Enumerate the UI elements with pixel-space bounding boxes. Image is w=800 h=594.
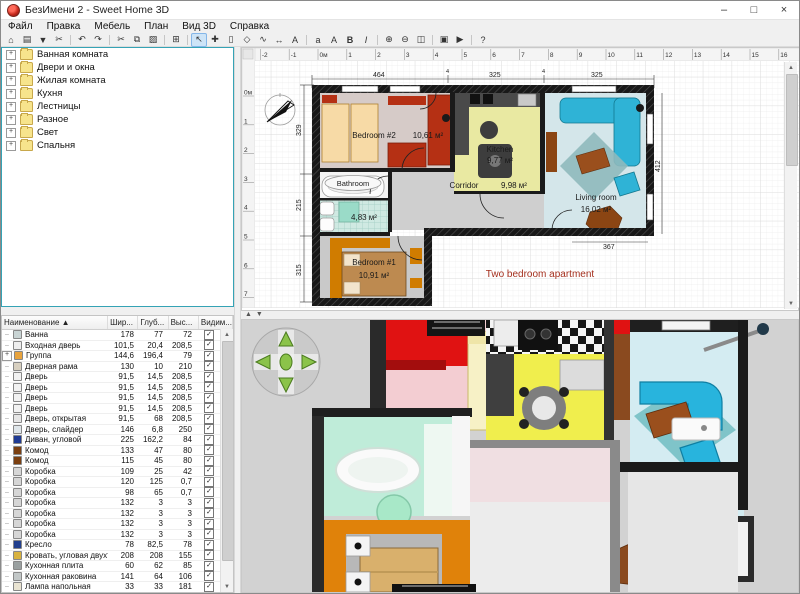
furniture-name: Коробка [25,477,56,486]
furniture-row[interactable]: –Дверная рама13010210✓ [2,362,233,373]
column-header-3[interactable]: Выс... [169,316,199,329]
furniture-name-cell: –Дверь, открытая [2,414,108,423]
column-header-1[interactable]: Шир... [108,316,138,329]
label-bedroom2: Bedroom #2 [352,131,396,140]
label-corridor-area: 9,98 м² [501,181,527,190]
furniture-row[interactable]: –Кресло7882,578✓ [2,540,233,551]
close-button[interactable]: × [769,1,799,19]
depth-cell: 77 [137,330,166,339]
furniture-name: Коробка [25,488,56,497]
copy-icon[interactable]: ⧉ [129,33,145,47]
depth-cell: 14,5 [137,383,166,392]
ruler-label: 5 [464,52,468,59]
visible-cell: ✓ [195,519,223,529]
height-cell: 181 [166,582,195,591]
depth-cell: 196,4 [137,351,166,360]
visible-cell: ✓ [195,382,223,392]
folder-icon [20,101,33,112]
select-tool-icon[interactable]: ↖ [191,33,207,47]
column-header-4[interactable]: Видим... [199,316,233,329]
ruler-label: 3 [244,176,248,183]
preferences-icon[interactable]: ✂ [51,33,67,47]
visible-cell: ✓ [195,550,223,560]
ruler-label: -2 [262,52,268,59]
view-3d-canvas[interactable] [242,320,799,592]
visible-checkbox[interactable]: ✓ [204,540,214,550]
width-cell: 133 [108,446,137,455]
height-cell: 208,5 [166,341,195,350]
furniture-name: Кухонная раковина [25,572,96,581]
label-corridor: Corridor [450,181,479,190]
ruler-label: 2 [244,147,248,154]
height-cell: 208,5 [166,414,195,423]
ruler-corner-icon [243,49,253,59]
width-cell: 178 [108,330,137,339]
add-furniture-icon[interactable]: ⊞ [168,33,184,47]
tree-line: – [5,583,11,590]
tree-line: – [5,426,11,433]
view-3d-panel[interactable] [241,319,799,593]
tree-line: – [5,468,11,475]
furniture-name: Дверь [25,372,48,381]
furniture-row[interactable]: –Комод1334780✓ [2,446,233,457]
visible-checkbox[interactable]: ✓ [204,477,214,487]
tree-line: – [5,457,11,464]
furniture-row[interactable]: –Коробка1092542✓ [2,467,233,478]
italic-icon[interactable]: I [358,33,374,47]
ruler-label: 10 [608,52,616,59]
ruler-label: 7 [521,52,525,59]
column-header-2[interactable]: Глуб... [138,316,168,329]
create-dimensions-icon[interactable]: ↔ [271,33,287,47]
visible-checkbox[interactable]: ✓ [204,508,214,518]
furniture-name-cell: –Коробка [2,488,108,497]
furniture-list-header[interactable]: Наименование ▲Шир...Глуб...Выс...Видим..… [2,316,233,330]
width-cell: 208 [108,551,137,560]
visible-checkbox[interactable]: ✓ [204,435,214,445]
toolbar-group: ✂⧉▨ [113,33,161,47]
folder-icon [20,140,33,151]
label-bedroom1-area: 10,91 м² [359,271,390,280]
toolbar-group: ↖✚▯◇∿↔A [191,33,303,47]
furniture-row[interactable]: –Кровать, угловая двухъяр...208208155✓ [2,551,233,562]
open-home-icon[interactable]: ▤ [19,33,35,47]
toolbar-group: ↶↷ [74,33,106,47]
decrease-text-icon[interactable]: a [310,33,326,47]
width-cell: 120 [108,477,137,486]
furniture-name-cell: –Дверь, слайдер [2,425,108,434]
create-photo-icon[interactable]: ▣ [436,33,452,47]
dim-label-315: 315 [296,264,303,276]
width-cell: 60 [108,561,137,570]
menu-edit[interactable]: Правка [40,20,88,33]
bold-icon[interactable]: B [342,33,358,47]
height-cell: 42 [166,467,195,476]
furniture-row[interactable]: –Входная дверь101,520,4208,5✓ [2,341,233,352]
ruler-label: 0м [320,52,329,59]
folder-icon [20,49,33,60]
zoom-in-icon[interactable]: ⊕ [381,33,397,47]
visible-checkbox[interactable]: ✓ [204,393,214,403]
width-cell: 146 [108,425,137,434]
maximize-button[interactable]: □ [739,1,769,19]
visible-checkbox[interactable]: ✓ [204,529,214,539]
visible-cell: ✓ [195,330,223,340]
left-right-splitter[interactable] [234,47,241,593]
tree-line: – [5,342,11,349]
toolbar-group: aABI [310,33,374,47]
plan-scroll-up-arrow[interactable]: ▲ [785,62,797,73]
ruler-label: 7 [244,291,248,298]
scrollbar-thumb[interactable] [222,341,234,561]
toolbar-separator [70,35,71,45]
tree-line: – [5,363,11,370]
furniture-row[interactable]: –Дверь91,514,5208,5✓ [2,404,233,415]
visible-checkbox[interactable]: ✓ [204,519,214,529]
tree-line: – [5,478,11,485]
visible-checkbox[interactable]: ✓ [204,424,214,434]
furniture-row[interactable]: –Дверь, слайдер1466,8250✓ [2,425,233,436]
furniture-row[interactable]: –Комод1154580✓ [2,456,233,467]
plan-scrollbar[interactable]: ▲ ▼ [784,62,797,309]
paste-icon[interactable]: ▨ [145,33,161,47]
label-bath-small-area: 4,83 м² [351,213,377,222]
furniture-row[interactable]: –Коробка1201250,7✓ [2,477,233,488]
catalog-category[interactable]: +Лестницы [2,100,233,113]
window-title: БезИмени 2 - Sweet Home 3D [25,4,169,16]
folder-icon [20,75,33,86]
catalog-category-label: Лестницы [37,101,80,112]
visible-cell: ✓ [195,351,223,361]
visible-cell: ✓ [195,435,223,445]
folder-icon [20,88,33,99]
catalog-category-label: Двери и окна [37,62,95,73]
height-cell: 80 [166,446,195,455]
tree-line: – [5,489,11,496]
compass-center-knob[interactable] [280,354,292,370]
furniture-name: Лампа напольная [25,582,91,591]
ruler-label: 4 [435,52,439,59]
furniture-name: Коробка [25,519,56,528]
column-header-0[interactable]: Наименование ▲ [2,316,108,329]
increase-text-icon[interactable]: A [326,33,342,47]
furniture-row[interactable]: –Коробка13233✓ [2,509,233,520]
expand-icon[interactable]: + [6,76,16,86]
furniture-row[interactable]: –Дверь91,514,5208,5✓ [2,372,233,383]
catalog-category[interactable]: +Кухня [2,87,233,100]
catalog-category-label: Жилая комната [37,75,106,86]
visible-cell: ✓ [195,445,223,455]
visible-checkbox[interactable]: ✓ [204,498,214,508]
expand-icon[interactable]: + [6,89,16,99]
furniture-name: Ванна [25,330,48,339]
visible-checkbox[interactable]: ✓ [204,571,214,581]
save-home-icon[interactable]: ▼ [35,33,51,47]
height-cell: 208,5 [166,404,195,413]
undo-icon[interactable]: ↶ [74,33,90,47]
add-text-icon[interactable]: A [287,33,303,47]
furniture-list-scrollbar[interactable]: ▲ ▼ [220,329,233,592]
depth-cell: 62 [137,561,166,570]
render-3d-apartment [312,320,769,592]
menu-plan[interactable]: План [137,20,175,33]
create-video-icon[interactable]: ▶ [452,33,468,47]
furniture-name-cell: –Дверная рама [2,362,108,371]
width-cell: 115 [108,456,137,465]
help-icon[interactable]: ? [475,33,491,47]
depth-cell: 125 [137,477,166,486]
toolbar-group: ⊞ [168,33,184,47]
height-cell: 3 [166,498,195,507]
dresser-icon [13,456,22,465]
furniture-catalog-tree[interactable]: +Ванная комната+Двери и окна+Жилая комна… [1,47,234,307]
expand-icon[interactable]: + [6,102,16,112]
ruler-label: 0м [244,90,253,97]
expand-icon[interactable]: + [2,351,12,361]
furniture-name: Коробка [25,509,56,518]
toolbar-group: ? [475,33,491,47]
tree-line: – [5,573,11,580]
ruler-label: 15 [752,52,760,59]
toolbar-separator [432,35,433,45]
furniture-row[interactable]: –Кухонная плита606285✓ [2,561,233,572]
label-living: Living room [575,193,617,202]
folder-icon [20,127,33,138]
menu-file[interactable]: Файл [1,20,40,33]
toolbar-group: ⌂▤▼✂ [3,33,67,47]
visible-cell: ✓ [195,477,223,487]
furniture-row[interactable]: –Кухонная раковина14164106✓ [2,572,233,583]
height-cell: 85 [166,561,195,570]
ruler-label: 3 [406,52,410,59]
zoom-out-icon[interactable]: ⊖ [397,33,413,47]
furniture-name: Диван, угловой [25,435,81,444]
furniture-name: Дверь, слайдер [25,425,83,434]
plan-view-panel[interactable]: -2-10м12345678910111213141516 0м1234567 [241,47,799,311]
visible-cell: ✓ [195,498,223,508]
visible-checkbox[interactable]: ✓ [204,582,214,592]
visible-cell: ✓ [195,456,223,466]
furniture-name: Дверь [25,404,48,413]
expand-icon[interactable]: + [6,50,16,60]
furniture-name: Дверь [25,393,48,402]
furniture-row[interactable]: –Дверь91,514,5208,5✓ [2,393,233,404]
menu-view3d[interactable]: Вид 3D [175,20,223,33]
furniture-name-cell: –Кухонная раковина [2,572,108,581]
plan-3d-splitter[interactable]: ▲ ▼ [241,311,799,319]
width-cell: 91,5 [108,404,137,413]
door-open-icon [13,414,22,423]
visible-checkbox[interactable]: ✓ [204,340,214,350]
furniture-name: Дверь, открытая [25,414,86,423]
create-walls-icon[interactable]: ▯ [223,33,239,47]
menu-furniture[interactable]: Мебель [87,20,137,33]
group-icon [14,351,23,360]
catalog-category[interactable]: +Двери и окна [2,61,233,74]
furniture-name-cell: –Дверь [2,393,108,402]
width-cell: 141 [108,572,137,581]
new-home-icon[interactable]: ⌂ [3,33,19,47]
furniture-name: Комод [25,446,49,455]
catalog-category[interactable]: +Спальня [2,139,233,152]
furniture-name: Коробка [25,467,56,476]
menu-bar: ФайлПравкаМебельПланВид 3DСправка [1,20,799,33]
expand-icon[interactable]: + [6,115,16,125]
catalog-furniture-splitter[interactable] [1,307,234,315]
ruler-label: 13 [694,52,702,59]
catalog-category[interactable]: +Разное [2,113,233,126]
ruler-label: 6 [492,52,496,59]
depth-cell: 14,5 [137,404,166,413]
create-rooms-icon[interactable]: ◇ [239,33,255,47]
expand-icon[interactable]: + [6,128,16,138]
create-polylines-icon[interactable]: ∿ [255,33,271,47]
plan-scrollbar-thumb[interactable] [786,74,798,166]
tree-line: – [5,531,11,538]
width-cell: 98 [108,488,137,497]
depth-cell: 33 [137,582,166,591]
width-cell: 109 [108,467,137,476]
depth-cell: 162,2 [137,435,166,444]
visible-cell: ✓ [195,561,223,571]
minimize-button[interactable]: – [709,1,739,19]
sofa-icon [13,435,22,444]
height-cell: 80 [166,456,195,465]
furniture-row[interactable]: –Дверь, открытая91,568208,5✓ [2,414,233,425]
furniture-row[interactable]: –Ванна1787772✓ [2,330,233,341]
expand-icon[interactable]: + [6,141,16,151]
depth-cell: 20,4 [137,341,166,350]
plan-subtitle[interactable]: Two bedroom apartment [486,269,595,280]
visible-checkbox[interactable]: ✓ [204,382,214,392]
box-icon [13,519,22,528]
furniture-name: Группа [26,351,51,360]
ruler-label: 2 [377,52,381,59]
toolbar-group: ▣▶ [436,33,468,47]
visible-checkbox[interactable]: ✓ [204,351,214,361]
tree-line: – [5,415,11,422]
tree-line: – [5,394,11,401]
door-frame-icon [13,362,22,371]
visible-checkbox[interactable]: ✓ [204,550,214,560]
width-cell: 91,5 [108,414,137,423]
redo-icon[interactable]: ↷ [90,33,106,47]
door-icon [13,393,22,402]
sink-icon [13,572,22,581]
depth-cell: 6,8 [137,425,166,434]
furniture-row[interactable]: –Коробка13233✓ [2,498,233,509]
ruler-label: 5 [244,234,248,241]
visible-checkbox[interactable]: ✓ [204,561,214,571]
dim-label-4a: 4 [446,69,449,75]
ruler-label: 11 [636,52,643,59]
label-living-area: 16,02 м² [581,205,612,214]
3d-navigation-compass[interactable] [252,328,320,396]
cut-icon[interactable]: ✂ [113,33,129,47]
label-bedroom1: Bedroom #1 [352,258,396,267]
furniture-name-cell: –Коробка [2,509,108,518]
depth-cell: 82,5 [137,540,166,549]
tree-line: – [5,373,11,380]
dresser-icon [13,446,22,455]
furniture-name: Кровать, угловая двухъяр... [25,551,108,560]
catalog-category[interactable]: +Свет [2,126,233,139]
visible-cell: ✓ [195,414,223,424]
splitter-collapse-arrows[interactable]: ▲ ▼ [245,311,264,319]
width-cell: 225 [108,435,137,444]
visible-checkbox[interactable]: ✓ [204,487,214,497]
tree-line: – [5,499,11,506]
virtual-visit-icon[interactable]: ◫ [413,33,429,47]
plan-scroll-down-arrow[interactable]: ▼ [785,298,797,309]
pan-tool-icon[interactable]: ✚ [207,33,223,47]
label-kitchen: Kitchen [487,145,514,154]
door-icon [13,372,22,381]
furniture-name-cell: –Дверь [2,372,108,381]
title-bar[interactable]: БезИмени 2 - Sweet Home 3D – □ × [1,1,799,20]
expand-icon[interactable]: + [6,63,16,73]
visible-checkbox[interactable]: ✓ [204,466,214,476]
visible-checkbox[interactable]: ✓ [204,456,214,466]
scroll-up-arrow[interactable]: ▲ [221,329,233,340]
visible-checkbox[interactable]: ✓ [204,445,214,455]
scroll-down-arrow[interactable]: ▼ [221,581,233,592]
visible-checkbox[interactable]: ✓ [204,361,214,371]
visible-cell: ✓ [195,466,223,476]
catalog-category-label: Разное [37,114,68,125]
furniture-row[interactable]: –Диван, угловой225162,284✓ [2,435,233,446]
visible-checkbox[interactable]: ✓ [204,330,214,340]
visible-cell: ✓ [195,582,223,592]
visible-checkbox[interactable]: ✓ [204,403,214,413]
height-cell: 3 [166,509,195,518]
furniture-row[interactable]: +Группа144,6196,479✓ [2,351,233,362]
visible-checkbox[interactable]: ✓ [204,372,214,382]
furniture-name-cell: –Входная дверь [2,341,108,350]
tree-line: – [5,541,11,548]
furniture-row[interactable]: –Коробка13233✓ [2,519,233,530]
furniture-row[interactable]: –Коробка13233✓ [2,530,233,541]
furniture-row[interactable]: –Дверь91,514,5208,5✓ [2,383,233,394]
height-cell: 210 [166,362,195,371]
toolbar-separator [187,35,188,45]
visible-cell: ✓ [195,508,223,518]
height-cell: 250 [166,425,195,434]
label-kitchen-area: 9,77 м² [487,156,513,165]
furniture-row[interactable]: –Лампа напольная3333181✓ [2,582,233,592]
furniture-name-cell: –Ванна [2,330,108,339]
toolbar-separator [377,35,378,45]
plan-2d-view[interactable]: -2-10м12345678910111213141516 0м1234567 [242,48,800,308]
width-cell: 91,5 [108,372,137,381]
furniture-name: Кухонная плита [25,561,83,570]
catalog-category[interactable]: +Ванная комната [2,48,233,61]
visible-checkbox[interactable]: ✓ [204,414,214,424]
catalog-category[interactable]: +Жилая комната [2,74,233,87]
depth-cell: 65 [137,488,166,497]
furniture-name-cell: –Кровать, угловая двухъяр... [2,551,108,560]
depth-cell: 64 [137,572,166,581]
furniture-list[interactable]: Наименование ▲Шир...Глуб...Выс...Видим..… [1,315,234,593]
width-cell: 101,5 [108,341,137,350]
height-cell: 106 [166,572,195,581]
width-cell: 132 [108,498,137,507]
application-window: БезИмени 2 - Sweet Home 3D – □ × ФайлПра… [0,0,800,594]
depth-cell: 68 [137,414,166,423]
furniture-row[interactable]: –Коробка98650,7✓ [2,488,233,499]
furniture-name-cell: –Коробка [2,467,108,476]
menu-help[interactable]: Справка [223,20,276,33]
